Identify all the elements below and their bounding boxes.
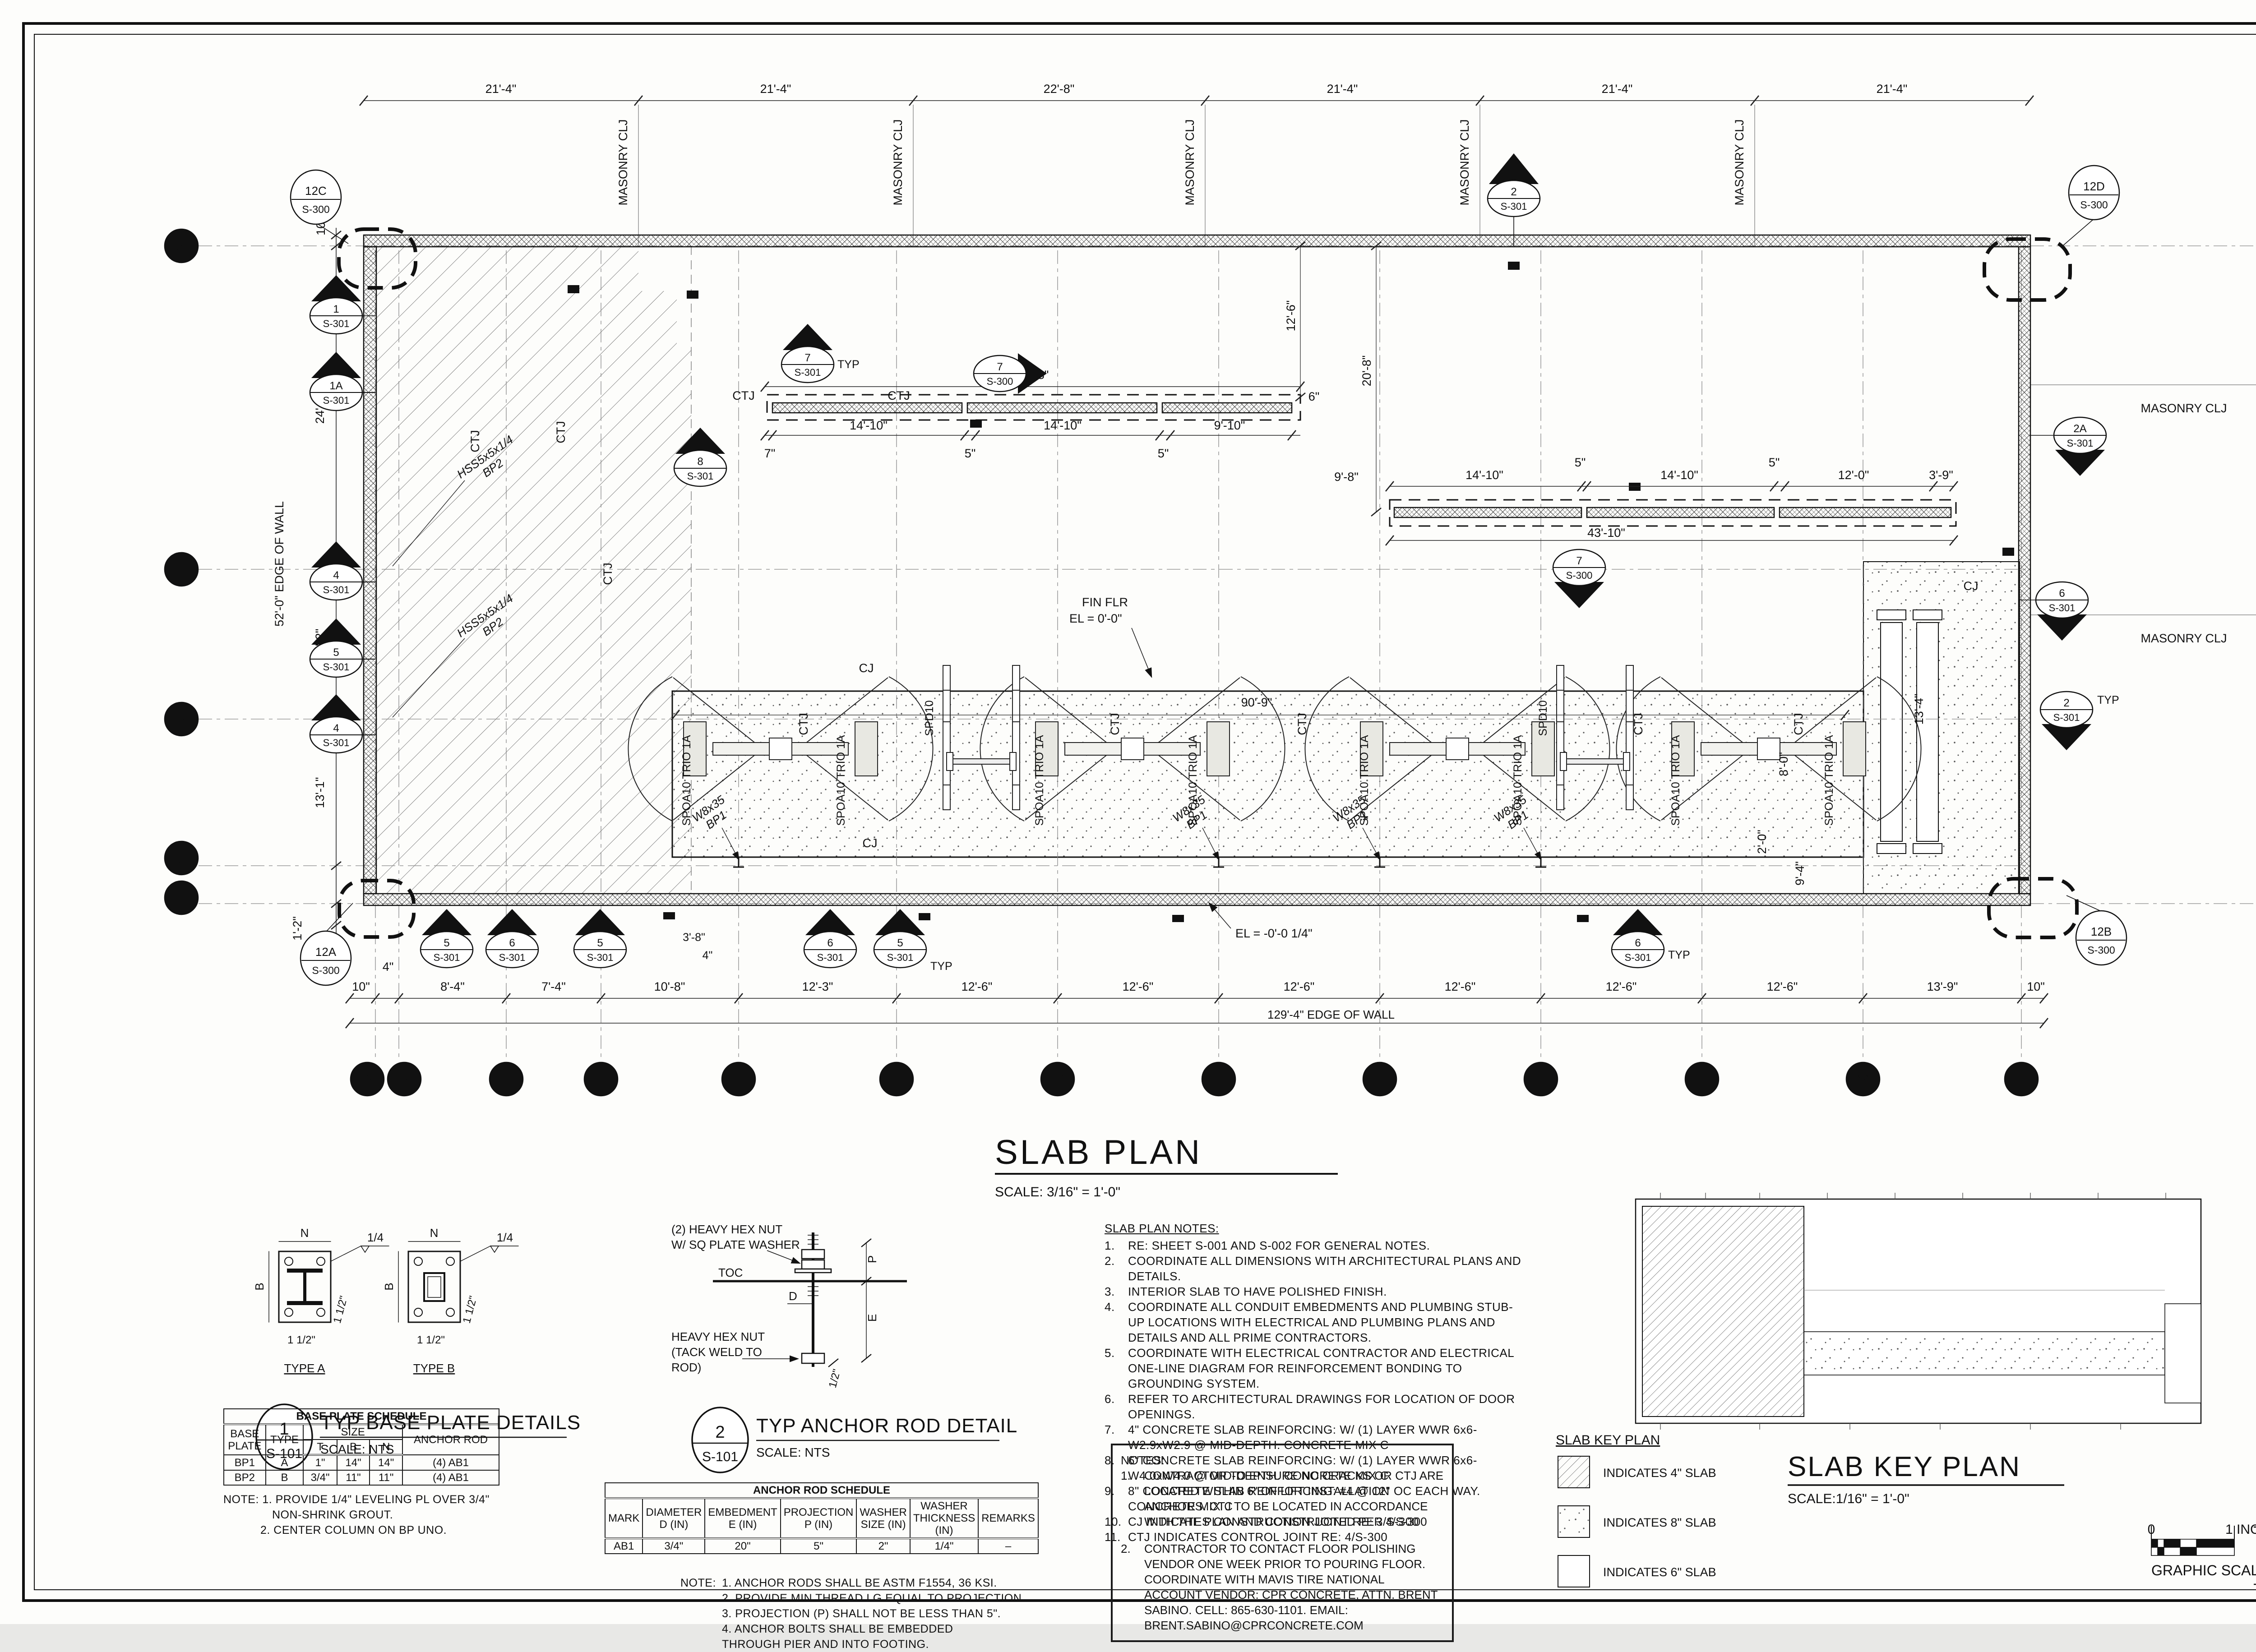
typ-label: TYP	[837, 358, 860, 371]
dim-text: 12'-6"	[1767, 980, 1798, 993]
ar-note: 4. ANCHOR BOLTS SHALL BE EMBEDDED THROUG…	[722, 1621, 1011, 1652]
flag-7b-s300: 7 S-300	[1553, 549, 1605, 608]
bp-col-rod: ANCHOR ROD	[402, 1424, 499, 1455]
circle-12d: 12D S-300	[2061, 166, 2119, 247]
masonry-clj-label: MASONRY CLJ	[2140, 401, 2227, 415]
bp-row: BP1A1"14"14"(4) AB1	[224, 1455, 499, 1470]
dim-text: 22'-8"	[1044, 82, 1075, 96]
legend-8in: INDICATES 8" SLAB	[1603, 1516, 1716, 1529]
flag-sheet: S-301	[323, 318, 350, 329]
flag-sheet: S-301	[323, 584, 350, 595]
edge-dist: 1 1/2"	[461, 1295, 480, 1325]
dim-text: 9'-10"	[1214, 419, 1245, 432]
edge-dist: 1 1/2"	[331, 1295, 350, 1325]
type-a-label: TYPE A	[284, 1361, 325, 1375]
note-num: 3.	[1105, 1284, 1128, 1299]
dim-b: B	[253, 1283, 266, 1290]
note-text: COORDINATE WITH ELECTRICAL CONTRACTOR AN…	[1128, 1345, 1524, 1391]
plan-title: SLAB PLAN SCALE: 3/16" = 1'-0"	[995, 1133, 1338, 1200]
fin-flr-el: EL = 0'-0"	[1069, 612, 1122, 625]
dim-text: 12'-6"	[1284, 980, 1315, 993]
flag-num: 1	[333, 303, 339, 315]
flag-num: 4	[333, 722, 339, 734]
bp-row: BP2B3/4"11"11"(4) AB1	[224, 1470, 499, 1485]
dim-text: 12'-6"	[1123, 980, 1154, 993]
flag-num: 4	[333, 569, 339, 581]
hex-nut-note2: (TACK WELD TO	[671, 1345, 762, 1359]
row-bubble: 1	[177, 889, 186, 907]
notes-box-title: NOTES:	[1121, 1453, 1444, 1468]
masonry-clj-label: MASONRY CLJ	[616, 119, 630, 205]
flag-sheet: S-301	[323, 661, 350, 673]
flag-2a-s301: 2A S-301	[2030, 417, 2106, 476]
note-item: 6.REFER TO ARCHITECTURAL DRAWINGS FOR LO…	[1105, 1391, 1524, 1422]
weld-size: 1/4	[497, 1231, 513, 1244]
flag-num: 5	[444, 937, 449, 949]
flag-sheet: S-301	[817, 952, 844, 963]
dim-text: 21'-4"	[1327, 82, 1358, 96]
type-b-label: TYPE B	[413, 1361, 455, 1375]
flag-2-s301-top: 2 S-301	[1488, 153, 1540, 246]
ar-note: 1. ANCHOR RODS SHALL BE ASTM F1554, 36 K…	[722, 1575, 1037, 1591]
detail-num: 12B	[2091, 925, 2112, 938]
flag-num: 2	[1511, 186, 1516, 198]
detail-num: 12D	[2083, 180, 2105, 193]
dim-p: P	[865, 1255, 879, 1263]
flag-num: 5	[597, 937, 603, 949]
ctj-label: CTJ	[1108, 713, 1122, 735]
hex-nut-note: W/ SQ PLATE WASHER	[671, 1238, 800, 1251]
masonry-clj-label: MASONRY CLJ	[1183, 119, 1197, 205]
note-text: CONTRACTOR TO ENSURE NO CRACKS OR CTJ AR…	[1144, 1468, 1444, 1529]
flag-sheet: S-300	[987, 376, 1013, 387]
ar-col: PROJECTION P (IN)	[781, 1498, 857, 1538]
flag-b5b: 5 S-301	[574, 909, 626, 968]
bp-schedule-title: BASE PLATE SCHEDULE	[224, 1409, 499, 1424]
ar-note: 2. PROVIDE MIN THREAD LG EQUAL TO PROJEC…	[722, 1591, 1037, 1606]
flag-7-s301-typ: 7 S-301 TYP	[781, 324, 860, 383]
ctj-label: CTJ	[468, 430, 482, 452]
bp-col-b: B	[337, 1440, 370, 1455]
detail-circle-num: 2	[715, 1423, 725, 1442]
note-item: 3.INTERIOR SLAB TO HAVE POLISHED FINISH.	[1105, 1284, 1524, 1299]
flag-b6b: 6 S-301	[804, 909, 856, 968]
dim-text: 8'-4"	[440, 980, 465, 993]
flag-7-s300: 7 S-300	[974, 353, 1047, 394]
ar-note: 3. PROJECTION (P) SHALL NOT BE LESS THAN…	[722, 1606, 1037, 1621]
col-bubble: M	[1856, 1070, 1870, 1089]
typ-label: TYP	[930, 960, 952, 973]
flag-sheet: S-301	[434, 952, 460, 963]
col-bubble: H	[1213, 1070, 1225, 1089]
note-text: COORDINATE ALL CONDUIT EMBEDMENTS AND PL…	[1128, 1299, 1524, 1345]
right-pit-area	[1863, 562, 2020, 894]
ctj-label: CTJ	[888, 389, 910, 402]
cell: 14"	[370, 1455, 402, 1470]
lift-label: SPOA10 TRIO 1A	[835, 735, 847, 826]
note-item: 1.CONTRACTOR TO ENSURE NO CRACKS OR CTJ …	[1121, 1468, 1444, 1529]
ar-note-label: NOTE:	[680, 1575, 722, 1652]
lift-label: SPD10	[923, 700, 936, 736]
row-bubble: 2	[177, 849, 186, 868]
bp-note: NOTE: 1. PROVIDE 1/4" LEVELING PL OVER 3…	[223, 1492, 499, 1507]
cell: 14"	[337, 1455, 370, 1470]
ctj-label: CTJ	[732, 389, 755, 402]
ctj-label: CTJ	[554, 421, 568, 443]
note-num: 2.	[1121, 1541, 1144, 1633]
flag-b6a: 6 S-301	[486, 909, 538, 968]
note-num: 6.	[1105, 1391, 1128, 1422]
key-plan-title: SLAB KEY PLAN	[1788, 1451, 2021, 1482]
note-text: REFER TO ARCHITECTURAL DRAWINGS FOR LOCA…	[1128, 1391, 1524, 1422]
col-bubble: A	[362, 1070, 373, 1089]
row-bubble: 4	[177, 560, 186, 579]
key-plan-legend: INDICATES 4" SLAB INDICATES 8" SLAB INDI…	[1558, 1456, 1716, 1587]
ctj-label: CTJ	[601, 563, 615, 585]
cell: (4) AB1	[402, 1470, 499, 1485]
bp-col-plate: BASE PLATE	[224, 1424, 266, 1455]
ar-col: EMBEDMENT E (IN)	[705, 1498, 780, 1538]
edge-of-wall-bottom: 129'-4" EDGE OF WALL	[1267, 1008, 1395, 1021]
dim-d: D	[789, 1289, 797, 1303]
dim-text: 8'-0"	[1777, 752, 1790, 776]
fin-flr-label: FIN FLR	[1082, 595, 1128, 609]
cell: 2"	[856, 1538, 910, 1554]
detail-sheet: S-300	[2087, 944, 2115, 956]
dim-text: 21'-4"	[1877, 82, 1908, 96]
masonry-clj-label: MASONRY CLJ	[891, 119, 905, 205]
ctj-label: CTJ	[1792, 713, 1805, 735]
flag-num: 2	[2063, 697, 2069, 709]
el-neg-label: EL = -0'-0 1/4"	[1235, 927, 1313, 940]
ar-col: DIAMETER D (IN)	[643, 1498, 705, 1538]
flag-sheet: S-301	[323, 737, 350, 748]
flag-num: 7	[1576, 555, 1582, 567]
masonry-clj-label: MASONRY CLJ	[2140, 632, 2227, 645]
edge-dist: 1 1/2"	[417, 1334, 445, 1346]
weld-size: 1/4	[367, 1231, 384, 1244]
flag-num: 7	[997, 361, 1003, 373]
dim-text: 13'-1"	[313, 777, 327, 808]
dim-text: 43'-10"	[1587, 526, 1625, 540]
note-item: 4.COORDINATE ALL CONDUIT EMBEDMENTS AND …	[1105, 1299, 1524, 1345]
toc-label: TOC	[718, 1266, 743, 1279]
dim-text: 7'-4"	[541, 980, 566, 993]
hex-nut-note: (2) HEAVY HEX NUT	[671, 1223, 782, 1236]
cell: 1"	[303, 1455, 337, 1470]
dim-text: 14'-10"	[850, 419, 888, 432]
edge-of-wall-left: 52'-0" EDGE OF WALL	[273, 501, 286, 627]
col-bubble: J	[1376, 1070, 1384, 1089]
ar-col: REMARKS	[978, 1498, 1038, 1538]
dim-text: 10"	[352, 980, 370, 993]
ar-col: MARK	[605, 1498, 643, 1538]
note-num: 1.	[1121, 1468, 1144, 1529]
flag-sheet: S-301	[499, 952, 526, 963]
col-bubble: N	[2016, 1070, 2027, 1089]
dim-text: 3'-9"	[1929, 468, 1953, 482]
flag-num: 1A	[329, 380, 342, 392]
ar-schedule-title: ANCHOR ROD SCHEDULE	[605, 1483, 1038, 1498]
ctj-label: CTJ	[1295, 713, 1309, 735]
note-num: 2.	[1105, 1253, 1128, 1284]
note-item: 5.COORDINATE WITH ELECTRICAL CONTRACTOR …	[1105, 1345, 1524, 1391]
row-bubble: 5	[177, 237, 186, 255]
cell: AB1	[605, 1538, 643, 1554]
dim-text: 12'-6"	[1606, 980, 1637, 993]
graphic-scale: 0 1 INCH GRAPHIC SCALE	[2148, 1522, 2256, 1578]
flag-b5c: 5 S-301 TYP	[874, 909, 952, 973]
flag-num: 5	[333, 646, 339, 659]
dim-text: 5"	[1575, 456, 1586, 469]
ar-col: WASHER THICKNESS (IN)	[910, 1498, 978, 1538]
cell: 11"	[370, 1470, 402, 1485]
cell: B	[266, 1470, 304, 1485]
base-plate-schedule: BASE PLATE SCHEDULE BASE PLATE TYPE SIZE…	[223, 1408, 499, 1538]
bp-col-t: T	[303, 1440, 337, 1455]
dim-text: 5"	[965, 447, 976, 460]
dim-text: 12'-6"	[962, 980, 993, 993]
dim-text: 12'-3"	[802, 980, 833, 993]
dim-text: 5"	[1769, 456, 1780, 469]
note-num: 1.	[1105, 1238, 1128, 1253]
note-text: RE: SHEET S-001 AND S-002 FOR GENERAL NO…	[1128, 1238, 1524, 1253]
row-bubble: 3	[177, 710, 186, 729]
lift-label: SPD10	[1537, 700, 1549, 736]
bottom-dim-texts: 10" 4" 8'-4" 7'-4" 10'-8" 12'-3" 12'-6" …	[352, 960, 2045, 1021]
dim-text: 12'-6"	[1284, 300, 1298, 332]
note-item: 2.COORDINATE ALL DIMENSIONS WITH ARCHITE…	[1105, 1253, 1524, 1284]
flag-b6c: 6 S-301 TYP	[1612, 909, 1690, 968]
cell: 3/4"	[303, 1470, 337, 1485]
col-bubble: B	[399, 1070, 410, 1089]
cj-label: CJ	[1964, 579, 1979, 593]
dim-text: 4"	[383, 960, 394, 974]
dim-text: 5"	[1158, 447, 1169, 460]
anchor-rod-schedule: ANCHOR ROD SCHEDULE MARK DIAMETER D (IN)…	[605, 1482, 1020, 1554]
note-text: INTERIOR SLAB TO HAVE POLISHED FINISH.	[1128, 1284, 1524, 1299]
dim-text: 14'-10"	[1044, 419, 1082, 432]
bp-col-type: TYPE	[266, 1424, 304, 1455]
bp-col-n: N	[370, 1440, 402, 1455]
col-bubble: C	[500, 1070, 512, 1089]
note-num: 5.	[1105, 1345, 1128, 1391]
dim-text: 9'-8"	[1334, 470, 1359, 484]
flag-sheet: S-301	[1501, 201, 1527, 212]
legend-6in: INDICATES 6" SLAB	[1603, 1565, 1716, 1579]
detail-sheet: S-300	[312, 964, 339, 976]
bp-col-size: SIZE	[303, 1424, 402, 1440]
dim-half: 1/2"	[827, 1368, 843, 1389]
flag-sheet: S-301	[795, 367, 821, 378]
dim-text: 14'-10"	[1465, 468, 1503, 482]
cell: 20"	[705, 1538, 780, 1554]
plan-title-scale: SCALE: 3/16" = 1'-0"	[995, 1185, 1120, 1200]
dim-text: 21'-4"	[1602, 82, 1633, 96]
lift-label: SPOA10 TRIO 1A	[1823, 735, 1835, 826]
title-block: SHEET NO.: S-101 0 1 INCH GRAPHIC SCALE	[2148, 1522, 2256, 1584]
flag-sheet: S-301	[2049, 602, 2076, 614]
cell: BP2	[224, 1470, 266, 1485]
note-item: 2.CONTRACTOR TO CONTACT FLOOR POLISHING …	[1121, 1541, 1444, 1633]
detail-num: 12C	[305, 184, 327, 198]
lift-label: SPOA10 TRIO 1A	[1033, 735, 1046, 826]
strip-dim-texts: 41'-8" 14'-10" 5" 14'-10" 5" 9'-10" 7" 6…	[732, 300, 1953, 709]
hex-nut-note2: HEAVY HEX NUT	[671, 1330, 765, 1343]
note-text: CONTRACTOR TO CONTACT FLOOR POLISHING VE…	[1144, 1541, 1444, 1633]
dim-text: 10'-8"	[654, 980, 685, 993]
cell: 5"	[781, 1538, 857, 1554]
dim-e: E	[865, 1314, 879, 1322]
dim-text: 6"	[1308, 390, 1320, 403]
dim-text: 21'-4"	[760, 82, 791, 96]
ctj-label: CTJ	[1632, 713, 1645, 735]
ar-col: WASHER SIZE (IN)	[856, 1498, 910, 1538]
dim-text: 3'-8"	[683, 931, 705, 944]
typ-label: TYP	[1668, 949, 1690, 961]
note-item: 1.RE: SHEET S-001 AND S-002 FOR GENERAL …	[1105, 1238, 1524, 1253]
drawing-sheet: 21'-4" 21'-4" 22'-8" 21'-4" 21'-4" 21'-4…	[0, 0, 2256, 1624]
flag-sheet: S-301	[1625, 952, 1651, 963]
trench-strip-2	[1390, 500, 1956, 526]
dim-text: 14'-10"	[1660, 468, 1698, 482]
cell: –	[978, 1538, 1038, 1554]
note-num: 4.	[1105, 1299, 1128, 1345]
flag-sheet: S-301	[323, 395, 350, 406]
lift-label: SPOA10 TRIO 1A	[1669, 735, 1682, 826]
circle-12a: 12A S-300	[300, 903, 353, 985]
dim-b: B	[382, 1283, 396, 1290]
key-plan-small-title: SLAB KEY PLAN	[1556, 1433, 1660, 1448]
flag-b5a: 5 S-301	[421, 909, 473, 968]
col-bubble: E	[733, 1070, 744, 1089]
slab-key-plan: SLAB KEY PLAN INDICATES 4" SLAB INDICATE…	[1556, 1193, 2201, 1587]
dim-text: 10"	[2027, 980, 2045, 993]
scale-one-inch: 1 INCH	[2225, 1522, 2256, 1537]
dim-text: 2'-0"	[1755, 830, 1769, 854]
masonry-joint-lines	[638, 105, 2256, 615]
dim-text: 4"	[703, 949, 713, 962]
flag-num: 2A	[2073, 423, 2086, 435]
slab-plan-notes-title: SLAB PLAN NOTES:	[1105, 1221, 1524, 1236]
flag-sheet: S-301	[687, 471, 714, 482]
legend-4in: INDICATES 4" SLAB	[1603, 1466, 1716, 1480]
detail-anchor-rod: (2) HEAVY HEX NUT W/ SQ PLATE WASHER TOC…	[671, 1223, 1017, 1472]
cell: 11"	[337, 1470, 370, 1485]
dim-text: 1'-2"	[291, 916, 304, 941]
hex-nut-note2: ROD)	[671, 1361, 701, 1374]
masonry-clj-label: MASONRY CLJ	[1733, 119, 1746, 205]
cell: 1/4"	[910, 1538, 978, 1554]
bp-note: 2. CENTER COLUMN ON BP UNO.	[223, 1523, 499, 1538]
key-plan-scale: SCALE:1/16" = 1'-0"	[1788, 1491, 1909, 1506]
detail-scale: SCALE: NTS	[756, 1445, 830, 1459]
flag-num: 5	[897, 937, 903, 949]
plan-title-text: SLAB PLAN	[995, 1133, 1202, 1172]
flag-num: 6	[1635, 937, 1641, 949]
flag-num: 7	[804, 352, 810, 364]
trench-strip-1	[767, 395, 1300, 420]
col-bubble: G	[1051, 1070, 1064, 1089]
flag-sheet: S-301	[887, 952, 914, 963]
dim-text: 12'-6"	[1445, 980, 1476, 993]
dim-text: 13'-9"	[1927, 980, 1958, 993]
anchor-rod-notes: NOTE: 1. ANCHOR RODS SHALL BE ASTM F1554…	[680, 1575, 1037, 1652]
detail-num: 12A	[315, 945, 337, 959]
cell: 3/4"	[643, 1538, 705, 1554]
bp-note: NON-SHRINK GROUT.	[223, 1507, 499, 1523]
edge-dist: 1 1/2"	[287, 1334, 315, 1346]
ctj-label: CTJ	[797, 713, 810, 735]
dim-n: N	[430, 1226, 439, 1240]
note-text: COORDINATE ALL DIMENSIONS WITH ARCHITECT…	[1128, 1253, 1524, 1284]
col-bubble: K	[1535, 1070, 1546, 1089]
detail-title: TYP ANCHOR ROD DETAIL	[756, 1415, 1017, 1437]
cell: (4) AB1	[402, 1455, 499, 1470]
flag-num: 6	[827, 937, 833, 949]
flag-sheet: S-301	[2053, 712, 2080, 723]
dim-text: 7"	[764, 447, 776, 460]
dim-text: 21'-4"	[485, 82, 517, 96]
masonry-clj-label: MASONRY CLJ	[1458, 119, 1471, 205]
detail-circle-sheet: S-101	[702, 1449, 738, 1464]
flag-num: 8	[697, 456, 703, 468]
typ-label: TYP	[2097, 694, 2119, 706]
flag-num: 6	[509, 937, 515, 949]
dim-text: 20'-8"	[1360, 355, 1373, 387]
flag-sheet: S-301	[587, 952, 614, 963]
col-bubble: D	[595, 1070, 607, 1089]
cell: A	[266, 1455, 304, 1470]
detail-sheet: S-300	[2080, 199, 2108, 211]
dim-text: 12'-0"	[1838, 468, 1869, 482]
contractor-notes-box: NOTES: 1.CONTRACTOR TO ENSURE NO CRACKS …	[1111, 1444, 1454, 1642]
flag-sheet: S-300	[1566, 570, 1593, 581]
col-bubble: F	[892, 1070, 901, 1089]
cj-label: CJ	[859, 661, 874, 675]
detail-sheet: S-300	[302, 203, 329, 215]
col-bubble: L	[1697, 1070, 1706, 1089]
cell: BP1	[224, 1455, 266, 1470]
dim-n: N	[300, 1226, 309, 1240]
cj-label: CJ	[863, 836, 878, 850]
dim-text: 90'-9"	[1241, 696, 1272, 709]
graphic-scale-label: GRAPHIC SCALE	[2151, 1562, 2256, 1578]
flag-2-s301-right: 2 S-301 TYP	[2040, 692, 2119, 750]
dim-text: 13'-4"	[1912, 694, 1926, 725]
dim-text: 9'-4"	[1793, 861, 1807, 886]
flag-num: 6	[2059, 587, 2065, 600]
flag-sheet: S-301	[2067, 438, 2094, 449]
ar-row: AB13/4"20"5"2"1/4"–	[605, 1538, 1038, 1554]
